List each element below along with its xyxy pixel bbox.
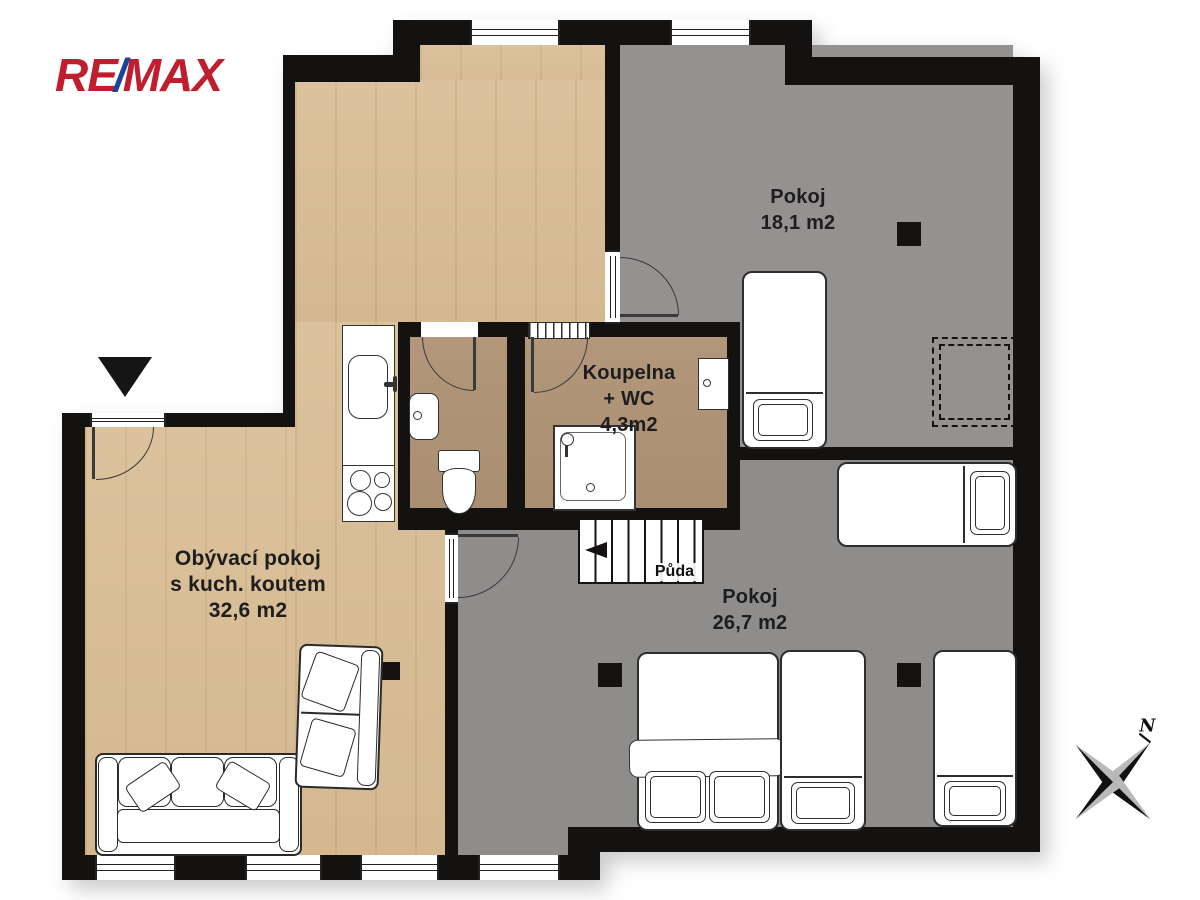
- stove-burner-icon: [374, 493, 392, 511]
- window-icon: [245, 855, 322, 880]
- loveseat: [295, 644, 384, 791]
- pillow: [944, 781, 1006, 821]
- room-label-bedroom-bottom-area: 26,7 m2: [670, 610, 830, 636]
- window-icon: [478, 855, 560, 880]
- door-leaf-entrance: [92, 427, 95, 479]
- room-label-living: Obývací pokoj s kuch. koutem 32,6 m2: [138, 546, 358, 624]
- room-label-bathroom-line2: + WC: [558, 386, 700, 412]
- wall-left: [62, 413, 85, 880]
- room-label-bedroom-bottom-name: Pokoj: [670, 584, 830, 610]
- room-label-bedroom-bottom: Pokoj 26,7 m2: [670, 584, 830, 636]
- room-label-living-area: 32,6 m2: [138, 598, 358, 624]
- pillow: [753, 399, 813, 441]
- column: [897, 222, 921, 246]
- wall-wc-bath-divider: [507, 322, 525, 530]
- dashed-opening: [932, 337, 1017, 427]
- sofa: [95, 753, 302, 856]
- wall-top-right: [812, 57, 1040, 85]
- stairs-label: Půda: [652, 563, 697, 581]
- room-label-bathroom-line1: Koupelna: [558, 360, 700, 386]
- room-label-bathroom-area: 4,3m2: [558, 412, 700, 438]
- room-label-living-line1: Obývací pokoj: [138, 546, 358, 572]
- column: [598, 663, 622, 687]
- bathroom-sink-tap-icon: [703, 379, 711, 387]
- room-label-living-line2: s kuch. koutem: [138, 572, 358, 598]
- bed-divider-line: [746, 392, 823, 394]
- bed-single-bottom-middle: [780, 650, 866, 831]
- pillow: [791, 782, 855, 824]
- wc-sink-tap-icon: [413, 411, 422, 420]
- stove-burner-icon: [374, 472, 390, 488]
- stove-burner-icon: [350, 470, 371, 491]
- stairs-direction-arrow-icon: [585, 542, 607, 558]
- window-icon: [470, 20, 560, 45]
- compass-icon: N: [1058, 716, 1168, 826]
- sofa-armrest: [98, 757, 118, 852]
- sofa-seat: [117, 809, 280, 843]
- toilet-bowl: [442, 468, 476, 514]
- shower-drain-icon: [586, 483, 595, 492]
- bed-divider-line: [963, 466, 965, 543]
- wall-top-step: [785, 20, 812, 85]
- wall-right: [1013, 57, 1040, 852]
- floorplan-page: RE/MAX: [0, 0, 1200, 900]
- column: [897, 663, 921, 687]
- wall-bath-right: [727, 322, 740, 530]
- bed-divider-line: [937, 775, 1013, 777]
- bed-divider-line: [784, 776, 862, 778]
- loveseat-cushion: [299, 717, 357, 778]
- window-icon: [670, 20, 751, 45]
- bed-single-top-room: [742, 271, 827, 449]
- stove-burner-icon: [347, 491, 372, 516]
- door-threshold-bedroom-bottom: [445, 533, 458, 604]
- floor-living-upper: [295, 80, 605, 322]
- window-icon: [95, 855, 176, 880]
- entrance-door-threshold: [90, 413, 166, 427]
- room-label-bedroom-top-area: 18,1 m2: [718, 210, 878, 236]
- room-label-bedroom-top-name: Pokoj: [718, 184, 878, 210]
- entrance-marker-icon: [98, 357, 152, 397]
- wall-upperleft-corner: [393, 20, 420, 60]
- kitchen-sink: [348, 355, 388, 419]
- pillow: [709, 771, 770, 823]
- pillow: [645, 771, 706, 823]
- loveseat-backrest: [357, 650, 381, 787]
- room-label-bathroom: Koupelna + WC 4,3m2: [558, 360, 700, 438]
- wall-left-upper: [283, 55, 295, 427]
- bed-single-horizontal: [837, 462, 1017, 547]
- floorplan: Půda: [0, 0, 1200, 900]
- wall-living-bedroomtop: [605, 45, 620, 250]
- bed-single-bottom-right: [933, 650, 1017, 827]
- room-label-bedroom-top: Pokoj 18,1 m2: [718, 184, 878, 236]
- window-icon: [360, 855, 439, 880]
- door-opening-wc: [421, 322, 478, 337]
- door-threshold-bedroom-top: [605, 250, 620, 324]
- stairs-to-attic: Půda: [578, 518, 704, 584]
- shower-hose-icon: [565, 445, 568, 457]
- pillow: [970, 471, 1010, 535]
- loveseat-cushion: [300, 650, 360, 713]
- loveseat-divider-line: [301, 712, 359, 716]
- compass-north-label: N: [1138, 716, 1156, 736]
- faucet-handle-icon: [393, 376, 397, 392]
